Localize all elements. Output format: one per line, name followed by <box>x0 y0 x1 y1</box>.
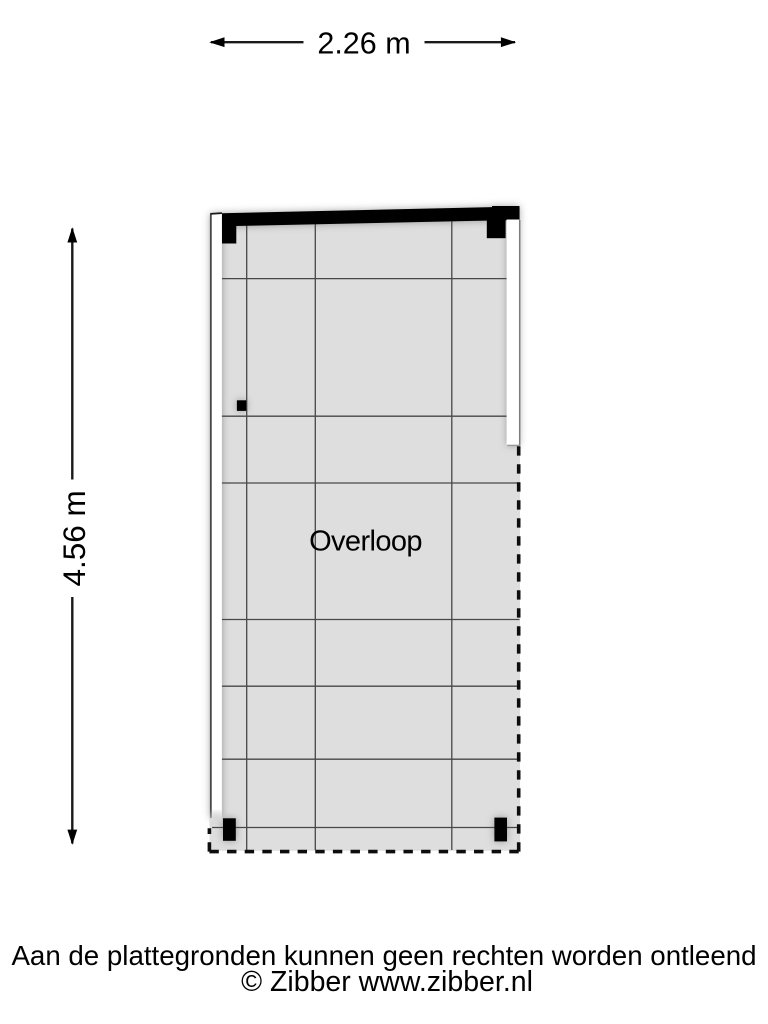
svg-text:4.56 m: 4.56 m <box>56 490 92 586</box>
svg-text:2.26 m: 2.26 m <box>317 27 410 61</box>
svg-text:© Zibber www.zibber.nl: © Zibber www.zibber.nl <box>241 966 533 998</box>
svg-text:Overloop: Overloop <box>309 526 422 558</box>
